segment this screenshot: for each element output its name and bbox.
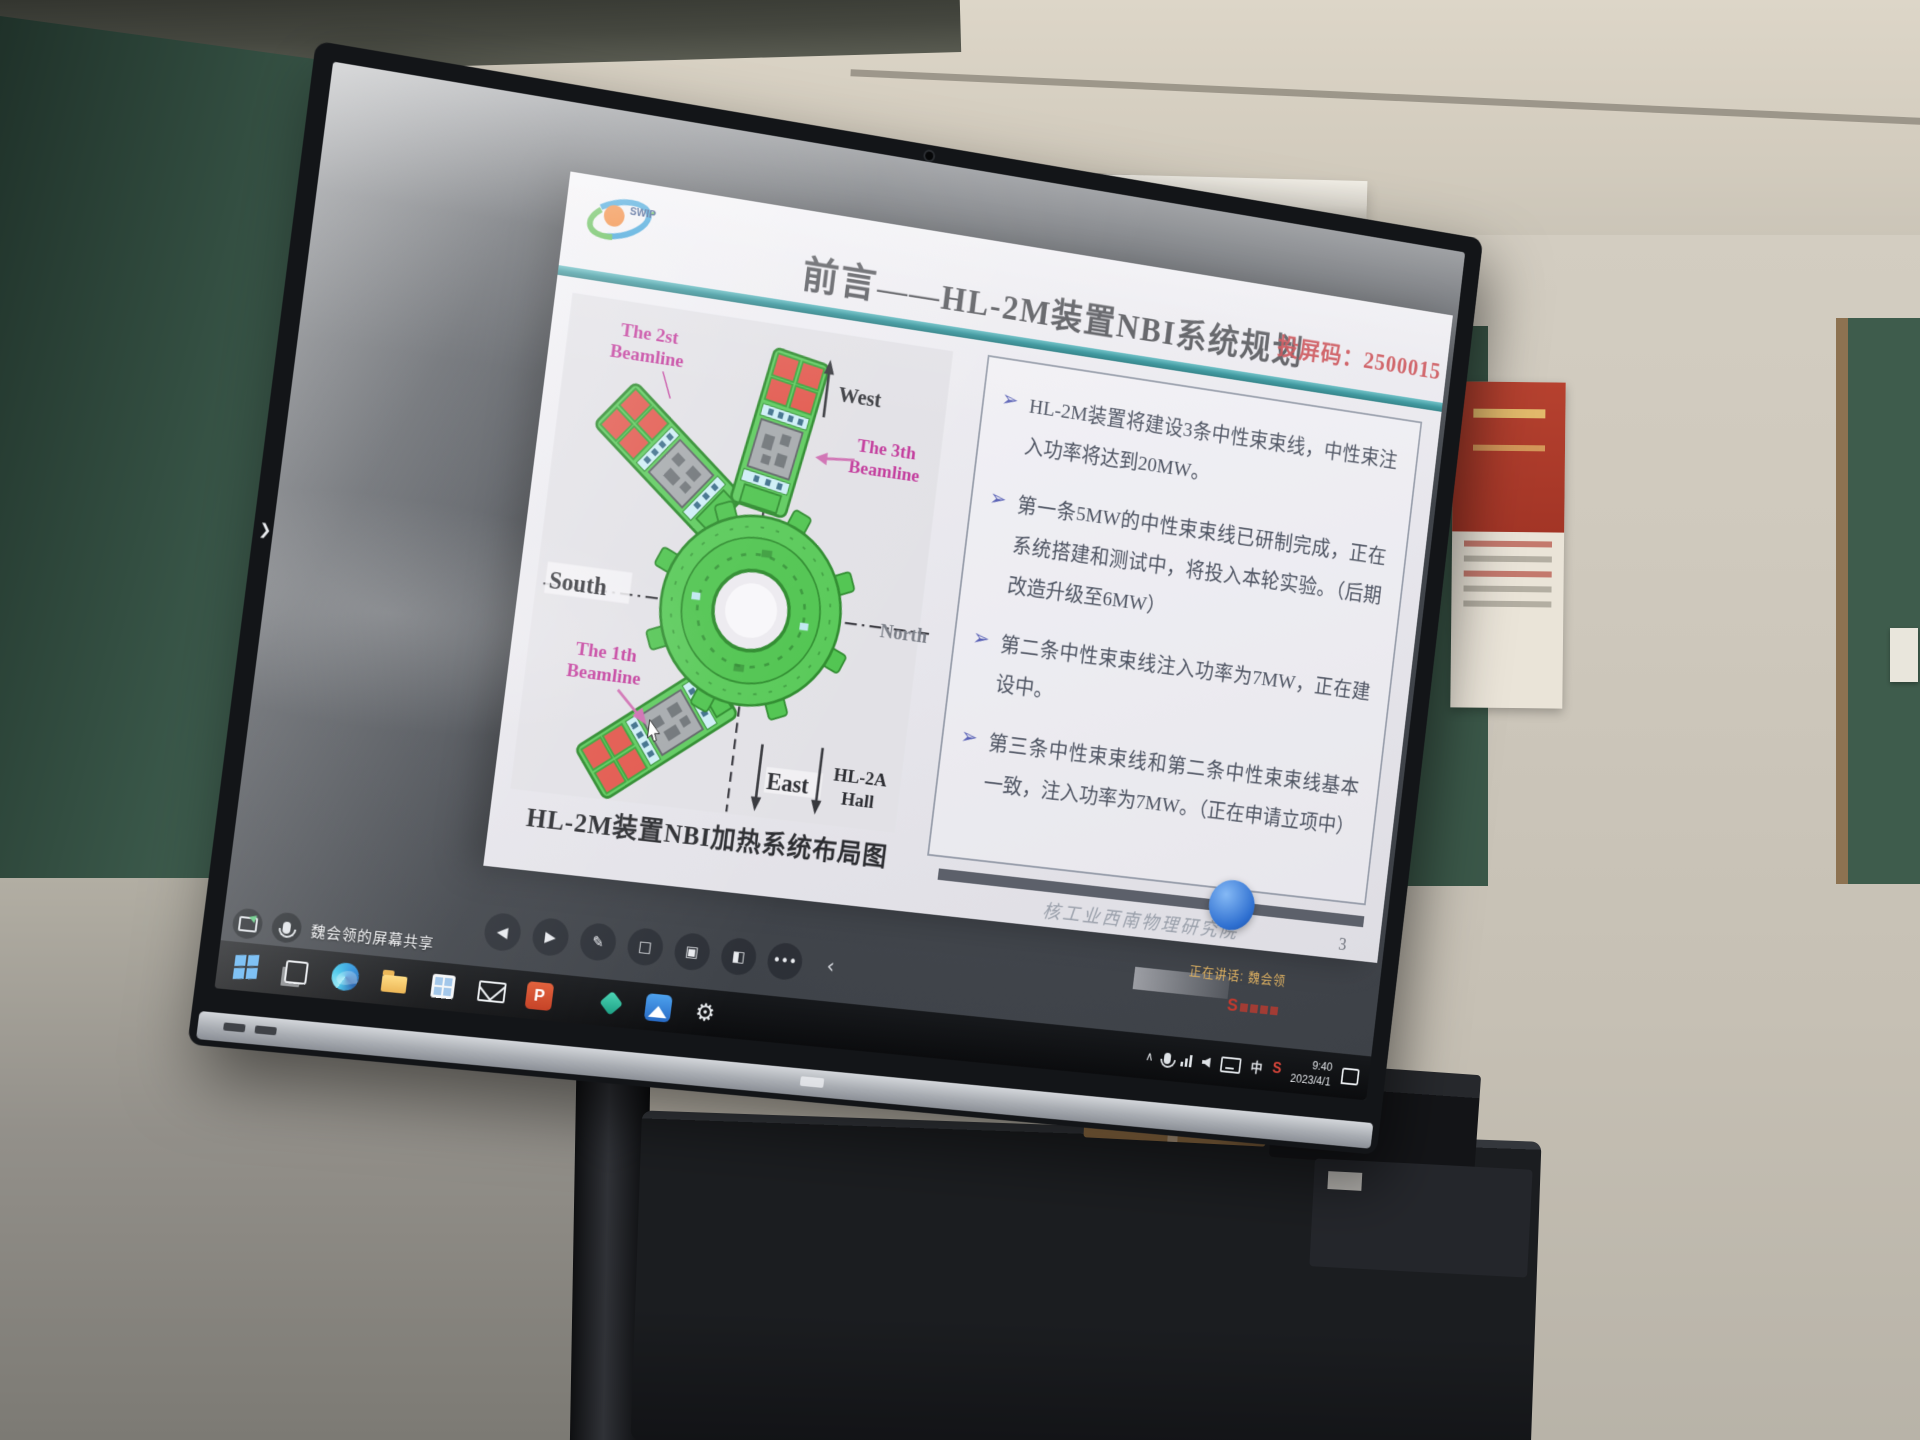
task-view-button[interactable] bbox=[277, 953, 314, 990]
bullet-arrow-icon: ➢ bbox=[965, 620, 992, 703]
back-button[interactable]: ◀ bbox=[482, 912, 522, 953]
poster-line bbox=[1464, 555, 1552, 562]
text-column: ➢HL-2M装置将建设3条中性束束线，中性束注入功率将达到20MW。 ➢第一条5… bbox=[924, 355, 1428, 928]
easicamera-icon[interactable] bbox=[641, 990, 676, 1026]
clock-time: 9:40 bbox=[1312, 1059, 1334, 1074]
svg-text:Hall: Hall bbox=[840, 788, 876, 813]
poster-line bbox=[1464, 570, 1552, 577]
mail-icon[interactable] bbox=[473, 973, 509, 1009]
more-button[interactable]: ••• bbox=[765, 941, 804, 981]
svg-text:East: East bbox=[765, 769, 811, 800]
powerpoint-icon[interactable]: P bbox=[521, 978, 557, 1014]
bullet-arrow-icon: ➢ bbox=[953, 720, 980, 803]
interactive-display: ❯ 腾讯会议 SWIP 前言——HL-2M装置NBI系统规划 投屏码 bbox=[187, 41, 1483, 1155]
start-button[interactable] bbox=[227, 948, 265, 985]
select-button[interactable]: □ bbox=[625, 927, 665, 967]
display-brand-plate bbox=[800, 1076, 825, 1088]
title-prefix: 前言 bbox=[800, 252, 880, 306]
poster-header bbox=[1452, 381, 1566, 532]
poster-line bbox=[1464, 540, 1552, 547]
wall-poster bbox=[1450, 381, 1565, 708]
speaker-icon[interactable] bbox=[1201, 1057, 1211, 1068]
ime-indicator[interactable]: 中 bbox=[1250, 1057, 1264, 1077]
capture-button[interactable]: ▣ bbox=[672, 932, 711, 972]
tray-mic-icon[interactable] bbox=[1163, 1052, 1171, 1064]
page-number: 3 bbox=[1337, 935, 1350, 956]
easinote-icon[interactable] bbox=[593, 985, 629, 1021]
chalkboard-right-edge bbox=[1836, 318, 1920, 884]
dark-box bbox=[1309, 1158, 1532, 1277]
comment-button[interactable]: ◧ bbox=[719, 937, 758, 977]
forward-button[interactable]: ▶ bbox=[530, 917, 570, 958]
brand-letter: S bbox=[1226, 995, 1239, 1016]
bullet-panel: ➢HL-2M装置将建设3条中性束束线，中性束注入功率将达到20MW。 ➢第一条5… bbox=[927, 355, 1422, 906]
edge-icon[interactable] bbox=[327, 958, 364, 995]
bullet-arrow-icon: ➢ bbox=[994, 382, 1020, 465]
display-camera-icon bbox=[925, 151, 934, 161]
classroom-scene: ❯ 腾讯会议 SWIP 前言——HL-2M装置NBI系统规划 投屏码 bbox=[0, 0, 1920, 1440]
seewo-tray-icon[interactable]: S bbox=[1271, 1061, 1282, 1078]
pen-button[interactable]: ✎ bbox=[578, 922, 618, 963]
settings-gear-icon[interactable]: ⚙ bbox=[687, 995, 722, 1031]
clock[interactable]: 9:40 2023/4/1 bbox=[1289, 1056, 1333, 1090]
file-explorer-icon[interactable] bbox=[376, 963, 413, 1000]
poster-line bbox=[1464, 585, 1552, 592]
tray-chevron-icon[interactable]: ∧ bbox=[1145, 1049, 1155, 1064]
notification-center-icon[interactable] bbox=[1341, 1067, 1360, 1085]
system-tray: ∧ 中 S 9:40 2023/4/1 bbox=[1144, 1041, 1361, 1092]
share-screen-icon[interactable] bbox=[231, 907, 264, 940]
wall-card bbox=[1890, 628, 1918, 682]
network-icon[interactable] bbox=[1180, 1054, 1192, 1067]
swip-logo: SWIP bbox=[576, 186, 661, 254]
title-dash: —— bbox=[875, 271, 943, 316]
nbi-layout-diagram: West South North East HL-2A bbox=[504, 290, 974, 838]
svg-text:SWIP: SWIP bbox=[629, 206, 656, 222]
display-screen: 腾讯会议 SWIP 前言——HL-2M装置NBI系统规划 投屏码：2500015 bbox=[214, 62, 1465, 1101]
share-banner-text: 魏会领的屏幕共享 bbox=[310, 920, 436, 953]
bullet-arrow-icon: ➢ bbox=[977, 481, 1008, 604]
presentation-slide: SWIP 前言——HL-2M装置NBI系统规划 投屏码：2500015 bbox=[483, 172, 1453, 964]
clock-date: 2023/4/1 bbox=[1290, 1072, 1332, 1089]
keyboard-icon[interactable] bbox=[1219, 1056, 1241, 1074]
port-slot bbox=[254, 1025, 277, 1035]
port-slot bbox=[223, 1022, 246, 1032]
tiles-app-icon[interactable] bbox=[425, 968, 462, 1005]
seewo-watermark: S bbox=[1226, 995, 1279, 1021]
microphone-icon[interactable] bbox=[270, 911, 303, 944]
poster-line bbox=[1463, 600, 1551, 607]
collapse-toolbar-chevron[interactable]: ‹ bbox=[811, 946, 849, 986]
diagram-column: West South North East HL-2A bbox=[499, 290, 974, 877]
